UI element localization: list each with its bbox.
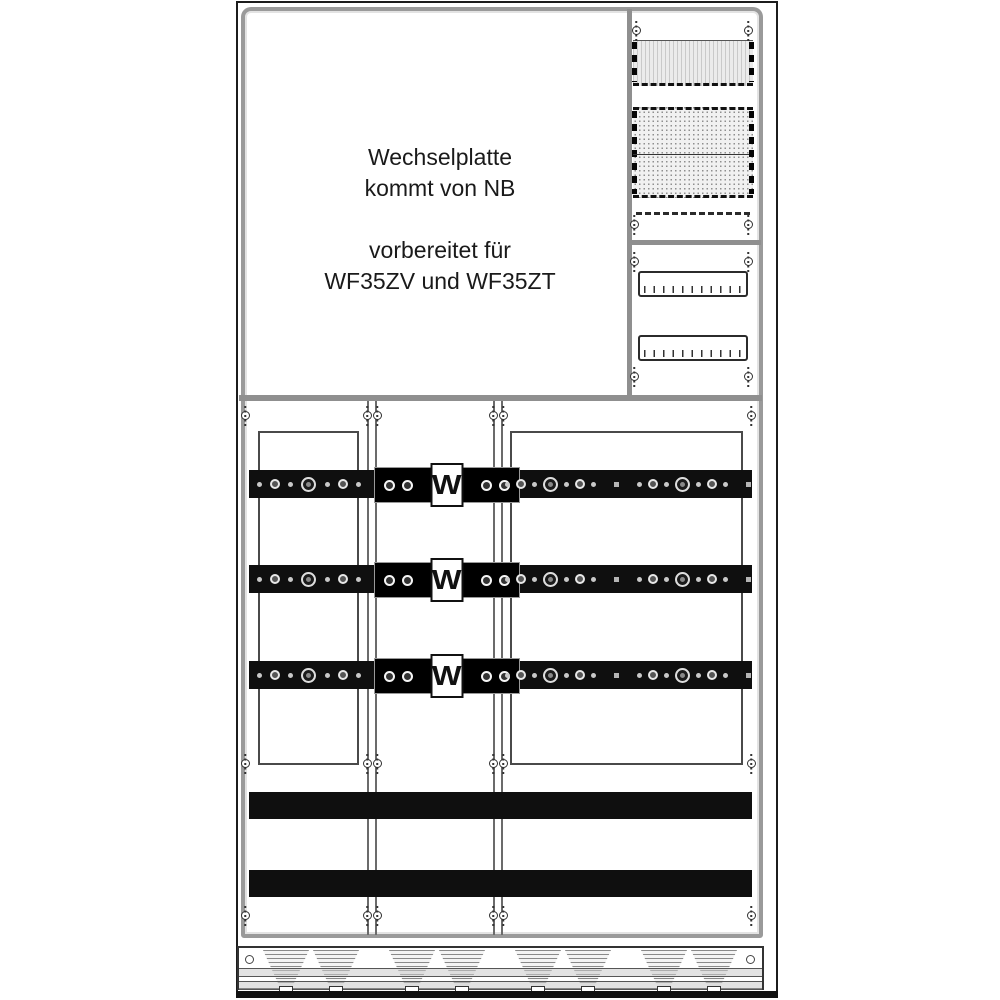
terminal-group (257, 668, 361, 683)
terminal (516, 574, 526, 584)
meter-busbar: W (249, 661, 752, 689)
terminal (564, 673, 569, 678)
screw (373, 911, 382, 920)
terminal (325, 577, 330, 582)
terminal (543, 572, 558, 587)
terminal (696, 482, 701, 487)
terminal (384, 575, 395, 586)
terminal (481, 671, 492, 682)
terminal (648, 479, 658, 489)
vent-panel-top (633, 40, 753, 86)
terminal (746, 577, 751, 582)
terminal (270, 574, 280, 584)
terminal (637, 482, 642, 487)
busbar-right-segment (505, 470, 751, 498)
terminal (481, 480, 492, 491)
terminal-group (505, 477, 596, 492)
terminal-group (257, 477, 361, 492)
terminal (591, 577, 596, 582)
terminal (723, 482, 728, 487)
din-rail-ticks (644, 286, 742, 293)
terminal (257, 482, 262, 487)
plinth (237, 946, 764, 990)
terminal (532, 482, 537, 487)
meter-busbar: W (249, 470, 752, 498)
terminal (591, 482, 596, 487)
screw (630, 220, 639, 229)
terminal (543, 668, 558, 683)
terminal (664, 577, 669, 582)
terminal (301, 668, 316, 683)
screw (744, 26, 753, 35)
terminal (675, 477, 690, 492)
screw (744, 220, 753, 229)
terminal (505, 482, 510, 487)
meter-busbar: W (249, 565, 752, 593)
terminal (614, 673, 619, 678)
terminal (575, 574, 585, 584)
base-bar (236, 991, 778, 998)
terminal (707, 670, 717, 680)
terminal (338, 574, 348, 584)
terminal (301, 572, 316, 587)
terminal (384, 480, 395, 491)
terminal (288, 577, 293, 582)
busbar-right-segment (505, 661, 751, 689)
din-rail-cover (638, 271, 748, 297)
terminal-group (637, 477, 728, 492)
terminal (325, 482, 330, 487)
din-rail-ticks (644, 350, 742, 357)
screw (747, 911, 756, 920)
terminal (543, 477, 558, 492)
screw (489, 411, 498, 420)
blank-cover-strip (249, 792, 752, 819)
plinth-band (239, 981, 762, 990)
busbar-right-segment (505, 565, 751, 593)
terminal (402, 480, 413, 491)
screw (489, 759, 498, 768)
terminal (532, 577, 537, 582)
terminal-group (505, 572, 596, 587)
terminal (675, 668, 690, 683)
screw (747, 759, 756, 768)
terminal (707, 574, 717, 584)
right-column-divider (630, 240, 761, 245)
terminal (564, 482, 569, 487)
terminal (257, 673, 262, 678)
screw (744, 372, 753, 381)
terminal (257, 577, 262, 582)
terminal (481, 575, 492, 586)
terminal (564, 577, 569, 582)
terminal-group (637, 668, 728, 683)
terminal (338, 479, 348, 489)
terminal-group (384, 575, 413, 586)
terminal-group (505, 668, 596, 683)
terminal (516, 670, 526, 680)
terminal (614, 482, 619, 487)
plinth-band (239, 968, 762, 977)
busbar-middle-segment: W (374, 658, 520, 694)
terminal (591, 673, 596, 678)
terminal (384, 671, 395, 682)
terminal (301, 477, 316, 492)
note-line: kommt von NB (253, 173, 627, 204)
dashed-mounting-line (636, 212, 750, 215)
screw (499, 759, 508, 768)
note-line: WF35ZV und WF35ZT (253, 266, 627, 297)
terminal (648, 670, 658, 680)
terminal (575, 479, 585, 489)
screw (363, 911, 372, 920)
busbar-left-segment (257, 565, 361, 593)
screw (747, 411, 756, 420)
note-line: Wechselplatte (253, 142, 627, 173)
screw (373, 411, 382, 420)
screw (373, 759, 382, 768)
din-rail-cover (638, 335, 748, 361)
terminal (637, 673, 642, 678)
terminal (402, 671, 413, 682)
terminal (505, 577, 510, 582)
terminal (696, 577, 701, 582)
note-line (253, 204, 627, 235)
terminal (356, 673, 361, 678)
terminal (516, 479, 526, 489)
panel-note: Wechselplatte kommt von NB vorbereitet f… (253, 142, 627, 297)
terminal (723, 673, 728, 678)
terminal (402, 575, 413, 586)
terminal (356, 482, 361, 487)
terminal-group (384, 671, 413, 682)
screw (363, 411, 372, 420)
screw (241, 411, 250, 420)
terminal (664, 673, 669, 678)
terminal (746, 673, 751, 678)
terminal (270, 479, 280, 489)
screw (630, 372, 639, 381)
busbar-left-segment (257, 470, 361, 498)
screw (363, 759, 372, 768)
terminal (356, 577, 361, 582)
terminal (696, 673, 701, 678)
screw (632, 26, 641, 35)
vent-panel-split-line (633, 154, 753, 155)
meter-cabinet-drawing: Wechselplatte kommt von NB vorbereitet f… (0, 0, 1000, 1000)
terminal (505, 673, 510, 678)
meter-marker: W (431, 558, 464, 602)
busbar-middle-segment: W (374, 467, 520, 503)
terminal (637, 577, 642, 582)
screw (499, 911, 508, 920)
terminal (338, 670, 348, 680)
terminal-group (637, 572, 728, 587)
terminal (675, 572, 690, 587)
meter-marker: W (431, 654, 464, 698)
terminal (648, 574, 658, 584)
terminal (270, 670, 280, 680)
mounting-hole (245, 955, 254, 964)
terminal-group (384, 480, 413, 491)
screw (489, 911, 498, 920)
screw (241, 759, 250, 768)
terminal (532, 673, 537, 678)
mounting-hole (746, 955, 755, 964)
terminal (664, 482, 669, 487)
busbar-left-segment (257, 661, 361, 689)
terminal (288, 673, 293, 678)
terminal (746, 482, 751, 487)
busbar-middle-segment: W (374, 562, 520, 598)
terminal (325, 673, 330, 678)
screw (630, 257, 639, 266)
terminal (723, 577, 728, 582)
blank-cover-strip (249, 870, 752, 897)
terminal (575, 670, 585, 680)
note-line: vorbereitet für (253, 235, 627, 266)
terminal-group (257, 572, 361, 587)
terminal (707, 479, 717, 489)
screw (499, 411, 508, 420)
screw (241, 911, 250, 920)
terminal (288, 482, 293, 487)
terminal (614, 577, 619, 582)
screw (744, 257, 753, 266)
meter-marker: W (431, 463, 464, 507)
vent-panel-double (633, 107, 753, 198)
